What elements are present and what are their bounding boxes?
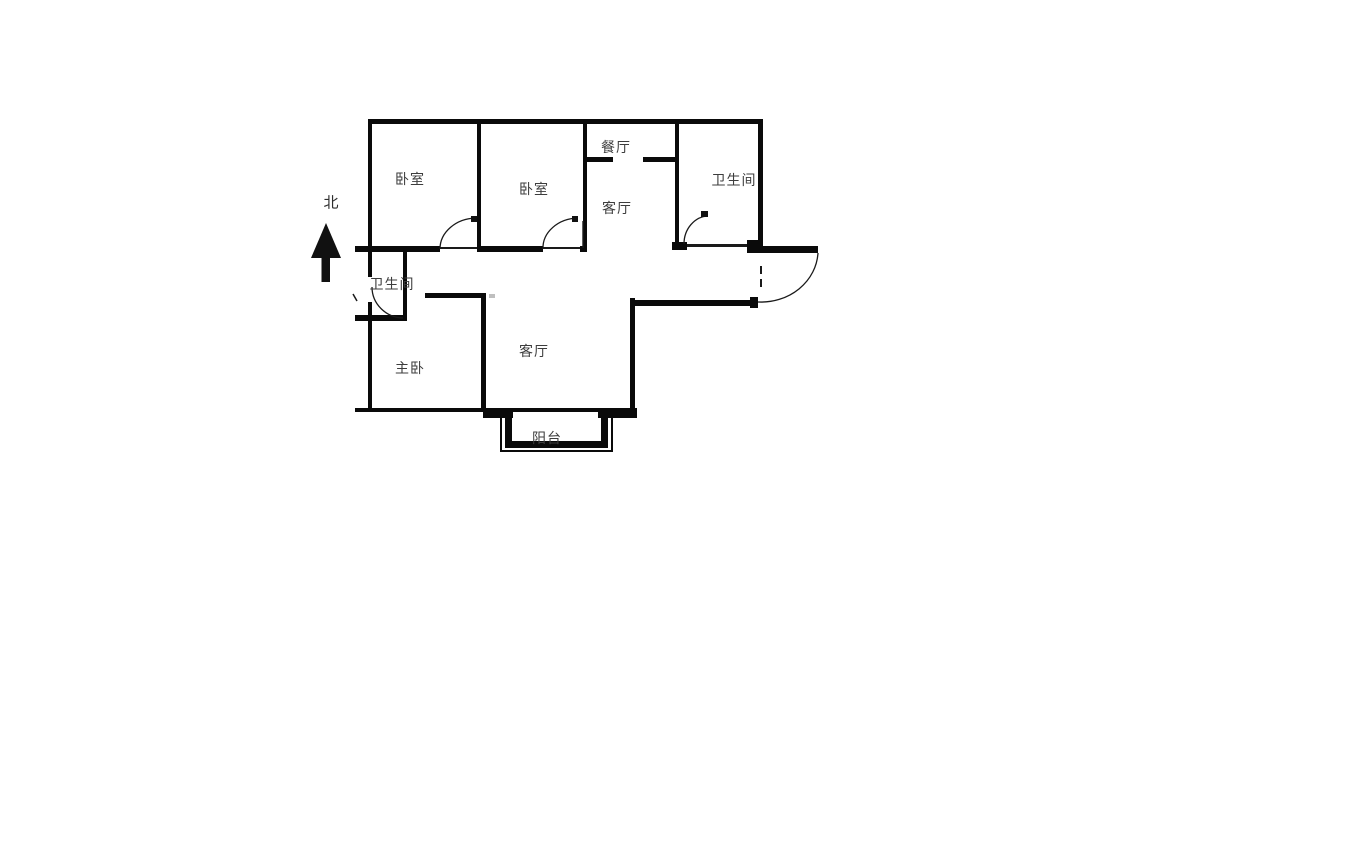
room-label-bathroom-left: 卫生间 bbox=[370, 274, 415, 294]
door-arc-bathroom-right bbox=[684, 216, 708, 244]
room-label-master-bedroom: 主卧 bbox=[395, 358, 425, 378]
door-leaf-bathroom-right bbox=[701, 211, 708, 217]
room-label-bedroom-2: 卧室 bbox=[519, 179, 549, 199]
floor-plan: 北 卧室 卧室 餐厅 客厅 卫生间 卫生间 主卧 客厅 阳台 bbox=[0, 0, 1360, 842]
door-leaf-bedroom2 bbox=[572, 216, 578, 222]
door-swing-overlay bbox=[0, 0, 1360, 842]
door-tick-bathroom-left bbox=[353, 294, 357, 301]
door-arc-bedroom1 bbox=[440, 218, 476, 249]
room-label-bathroom-right: 卫生间 bbox=[712, 170, 757, 190]
room-label-hall: 客厅 bbox=[602, 198, 632, 218]
door-arc-entrance bbox=[758, 253, 818, 302]
door-leaf-bedroom1 bbox=[471, 216, 477, 222]
stray-mark bbox=[489, 294, 495, 298]
north-label: 北 bbox=[323, 192, 338, 213]
room-label-dining-room: 餐厅 bbox=[601, 137, 631, 157]
room-label-living-room: 客厅 bbox=[519, 341, 549, 361]
room-label-bedroom-1: 卧室 bbox=[395, 169, 425, 189]
north-arrow-icon bbox=[311, 223, 341, 282]
room-label-balcony: 阳台 bbox=[532, 428, 562, 448]
door-arc-bedroom2 bbox=[543, 218, 578, 249]
